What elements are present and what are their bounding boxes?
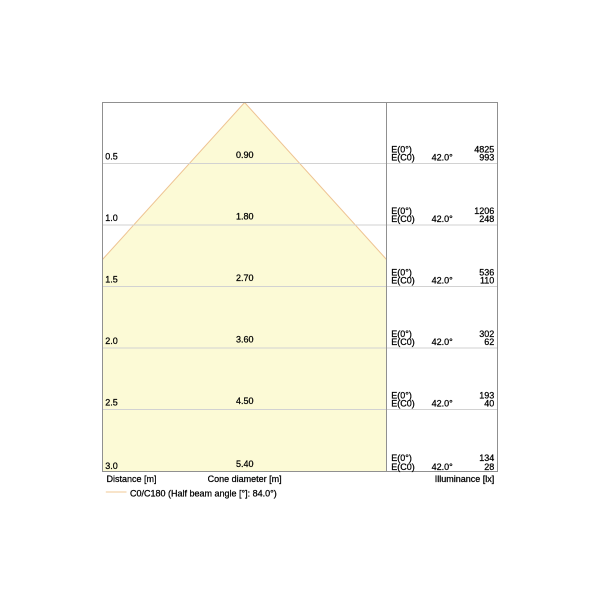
svg-text:Distance [m]: Distance [m] (107, 474, 157, 484)
svg-text:C0/C180 (Half beam angle [°]:: C0/C180 (Half beam angle [°]: 84.0°) (130, 488, 277, 498)
svg-text:3.0: 3.0 (105, 461, 118, 471)
svg-text:E(C0): E(C0) (391, 153, 415, 163)
svg-text:1.5: 1.5 (105, 275, 118, 285)
svg-text:Cone diameter [m]: Cone diameter [m] (208, 474, 282, 484)
svg-text:5.40: 5.40 (236, 459, 254, 469)
svg-text:0.90: 0.90 (236, 150, 254, 160)
svg-text:42.0°: 42.0° (432, 276, 454, 286)
svg-text:40: 40 (484, 399, 494, 409)
svg-text:0.5: 0.5 (105, 152, 118, 162)
svg-text:42.0°: 42.0° (432, 337, 454, 347)
svg-text:42.0°: 42.0° (432, 153, 454, 163)
svg-text:1.80: 1.80 (236, 212, 254, 222)
svg-text:E(C0): E(C0) (391, 462, 415, 472)
svg-text:E(C0): E(C0) (391, 399, 415, 409)
svg-text:248: 248 (479, 214, 494, 224)
svg-text:2.0: 2.0 (105, 336, 118, 346)
svg-text:E(C0): E(C0) (391, 214, 415, 224)
svg-text:993: 993 (479, 153, 494, 163)
svg-text:4.50: 4.50 (236, 396, 254, 406)
svg-text:2.70: 2.70 (236, 273, 254, 283)
svg-text:110: 110 (480, 276, 494, 286)
svg-text:28: 28 (484, 462, 494, 472)
svg-text:1.0: 1.0 (105, 213, 118, 223)
svg-text:2.5: 2.5 (105, 398, 118, 408)
svg-text:E(C0): E(C0) (391, 337, 415, 347)
svg-text:42.0°: 42.0° (432, 399, 454, 409)
svg-text:3.60: 3.60 (236, 335, 254, 345)
svg-text:E(C0): E(C0) (391, 276, 415, 286)
svg-text:Illuminance [lx]: Illuminance [lx] (435, 474, 495, 484)
svg-text:42.0°: 42.0° (432, 462, 454, 472)
svg-text:62: 62 (484, 337, 494, 347)
svg-text:42.0°: 42.0° (432, 214, 454, 224)
